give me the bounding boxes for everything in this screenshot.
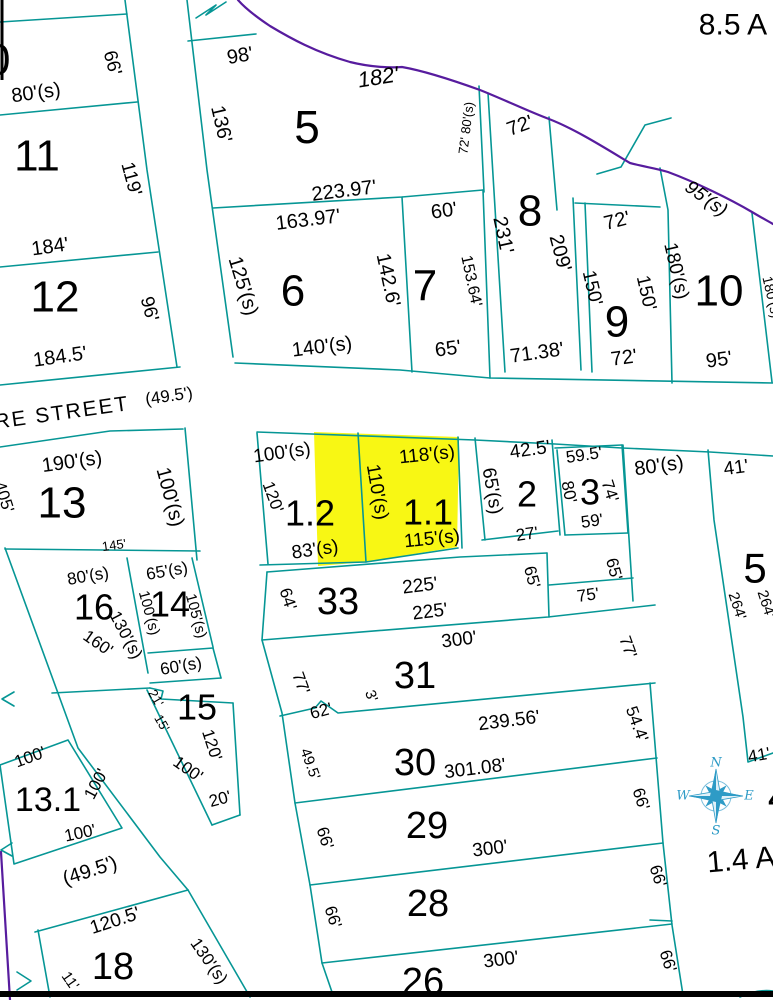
map-label: 209' [545, 232, 576, 274]
map-label: 72' [610, 345, 639, 370]
map-label: 264' [754, 588, 773, 620]
map-label: 223.97' [310, 176, 377, 206]
map-label: 30 [394, 742, 436, 784]
map-label: 100'(s) [152, 465, 189, 529]
compass-rose-icon: N E S W [676, 756, 754, 839]
map-label: 140'(s) [291, 332, 354, 361]
map-label: 71.38' [509, 338, 565, 367]
map-label: 72' 80'(s) [455, 101, 476, 155]
map-label: 80'(s) [10, 79, 62, 108]
map-label: 182' [356, 61, 401, 92]
map-label: 10 [695, 267, 744, 316]
map-label: 300' [482, 947, 520, 972]
map-label: 180'(s) [659, 241, 692, 302]
map-label: 239.56' [477, 707, 541, 735]
map-label: 41' [722, 456, 749, 480]
map-label: 64' [276, 586, 301, 613]
map-label: 15 [177, 687, 217, 728]
compass-letter-e: E [743, 789, 754, 804]
map-label: 1.2 [285, 493, 335, 534]
map-label: 74' [598, 478, 623, 505]
map-label: 160' [80, 626, 117, 660]
map-label: 1.4 A [705, 841, 773, 880]
map-label: 142.6' [372, 251, 405, 308]
map-label: 77' [288, 669, 313, 696]
map-label: 62' [308, 699, 334, 723]
map-label: 95'(s) [681, 177, 731, 222]
map-label: 95' [705, 347, 734, 372]
map-label: 9 [605, 298, 629, 347]
map-label: 80'(s) [633, 452, 685, 481]
map-label: 7 [413, 262, 437, 311]
map-label: 60'(s) [159, 653, 204, 679]
map-label: 225' [411, 599, 449, 624]
map-label: 49.5' [297, 746, 324, 782]
map-label: 65'(s) [145, 558, 190, 584]
map-label: (49.5') [144, 383, 194, 408]
map-canvas: N E S W 1080'(s)66'11119'184'1296'184.5'… [0, 0, 773, 1000]
map-label: 100'(s) [252, 439, 312, 468]
map-label: 80'(s) [66, 563, 111, 589]
map-label: 66' [646, 863, 671, 890]
map-label: 66' [99, 48, 126, 77]
map-label: (49.5') [60, 852, 120, 890]
map-label: 33 [317, 581, 359, 623]
map-label: 125'(s) [224, 254, 263, 318]
map-label: 301.08' [443, 755, 507, 783]
map-label: 59' [580, 510, 605, 532]
map-label: 4 [768, 773, 773, 822]
map-label: 120' [198, 727, 226, 763]
map-label: 190'(s) [41, 447, 104, 477]
map-label: 225' [401, 573, 439, 598]
arrow-chevron-icon [1, 692, 31, 990]
break-symbol-icon [196, 2, 671, 174]
parcel-labels: 1080'(s)66'11119'184'1296'184.5'98'136'5… [0, 9, 773, 1000]
map-label: 75' [576, 584, 601, 606]
map-label: 130'(s) [186, 934, 231, 987]
map-label: 100' [170, 752, 207, 786]
map-label: 21' [145, 687, 166, 709]
map-label: 66' [629, 786, 654, 813]
map-label: 5 [743, 545, 766, 592]
map-label: 11' [58, 969, 83, 994]
map-label: 26 [402, 961, 444, 1000]
map-label: 163.97' [274, 205, 341, 235]
map-label: 3' [361, 688, 381, 704]
map-label: 136' [206, 103, 236, 144]
compass-letter-n: N [709, 756, 722, 771]
map-label: 42.5' [508, 437, 551, 463]
map-label: 10 [0, 36, 10, 85]
compass-letter-s: S [712, 824, 721, 839]
map-label: 2 [517, 474, 537, 515]
map-label: 54.4' [622, 704, 652, 745]
compass-letter-w: W [676, 789, 691, 804]
map-label: 150' [632, 273, 660, 312]
map-label: 119' [116, 160, 145, 198]
map-label: 13.1 [15, 781, 81, 819]
map-label: 59.5' [565, 443, 604, 467]
map-label: 27' [515, 523, 540, 545]
map-label: 120.5' [87, 903, 142, 939]
map-label: 11 [14, 132, 60, 181]
map-label: 5 [294, 101, 320, 153]
map-label: 72' [504, 111, 536, 141]
map-label: 29 [406, 805, 448, 847]
map-label: 184' [30, 234, 70, 261]
plat-map: N E S W 1080'(s)66'11119'184'1296'184.5'… [0, 0, 773, 1000]
map-label: 15' [151, 712, 172, 734]
map-label: 8.5 A [699, 9, 767, 42]
map-label: 65' [520, 564, 544, 590]
map-label: 231' [488, 215, 517, 256]
map-label: 8 [518, 187, 542, 236]
map-label: 77' [615, 633, 640, 660]
map-label: 65' [434, 336, 463, 361]
map-label: 98' [225, 43, 255, 69]
map-label: 100' [12, 743, 48, 772]
map-label: 28 [407, 883, 449, 925]
map-label: 60' [430, 198, 459, 223]
map-label: 72' [602, 207, 633, 235]
map-label: 100' [63, 820, 98, 845]
map-label: 13 [38, 479, 87, 528]
map-label: 145' [101, 536, 127, 554]
map-label: 12 [31, 273, 80, 322]
map-label: 66' [321, 904, 346, 931]
map-label: 100' [80, 766, 112, 803]
map-label: 405' [0, 479, 18, 515]
map-label: 300' [471, 836, 509, 861]
map-label: 150' [578, 268, 606, 307]
map-label: 80' [557, 479, 580, 505]
map-label: 20' [207, 787, 233, 811]
map-label: 184.5' [32, 342, 88, 371]
map-label: 41' [746, 744, 771, 767]
map-label: 18 [92, 946, 134, 988]
map-label: 96' [136, 294, 163, 323]
map-label: 300' [440, 627, 478, 652]
map-label: 31 [394, 655, 436, 697]
map-label: 66' [313, 825, 338, 852]
map-label: 3 [580, 472, 600, 513]
map-label: RE STREET [0, 392, 131, 434]
map-label: 153.64' [457, 254, 484, 308]
map-label: 6 [281, 267, 305, 316]
